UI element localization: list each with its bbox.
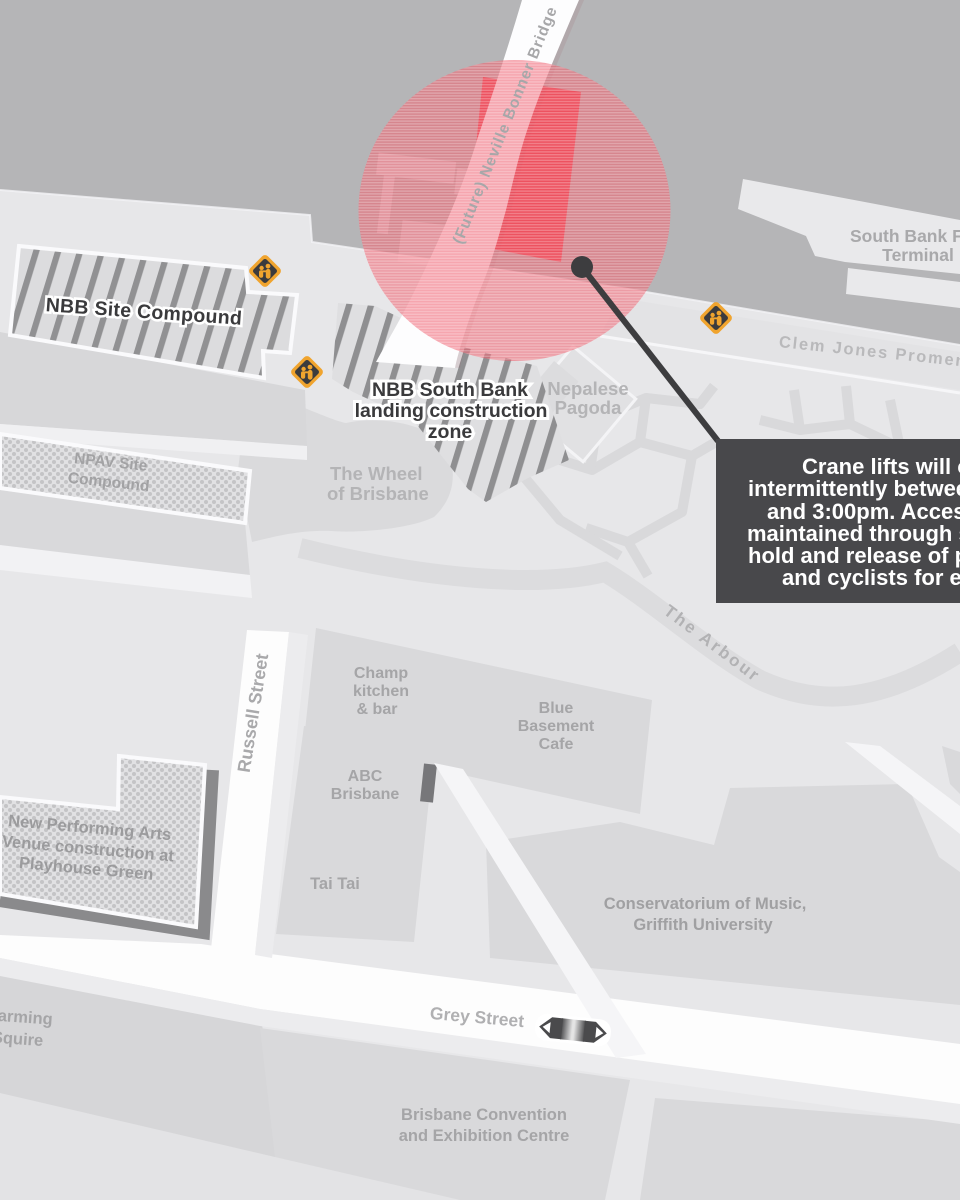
svg-text:Cafe: Cafe <box>539 736 574 753</box>
svg-text:Basement: Basement <box>518 718 595 735</box>
svg-text:Conservatorium of Music,: Conservatorium of Music, <box>604 895 807 913</box>
svg-text:Griffith University: Griffith University <box>633 916 773 934</box>
svg-text:and cyclists for each lift.: and cyclists for each lift. <box>782 565 960 590</box>
svg-text:Brisbane: Brisbane <box>331 786 400 803</box>
svg-text:intermittently between 9:00am: intermittently between 9:00am <box>748 476 960 501</box>
svg-text:landing construction: landing construction <box>355 400 548 422</box>
svg-text:The Wheel: The Wheel <box>330 463 423 484</box>
svg-text:Nepalese: Nepalese <box>547 378 628 399</box>
svg-text:South Bank Ferry: South Bank Ferry <box>850 226 960 246</box>
svg-text:Champ: Champ <box>354 665 408 682</box>
svg-text:of Brisbane: of Brisbane <box>327 483 429 504</box>
svg-text:Blue: Blue <box>539 700 574 717</box>
svg-text:NBB South Bank: NBB South Bank <box>372 379 528 401</box>
svg-text:& bar: & bar <box>357 701 398 718</box>
svg-text:Terminal: Terminal <box>882 245 954 265</box>
svg-text:Squire: Squire <box>0 1029 44 1051</box>
svg-text:zone: zone <box>428 421 473 443</box>
svg-text:Pagoda: Pagoda <box>555 397 623 418</box>
svg-text:Brisbane Convention: Brisbane Convention <box>401 1106 567 1124</box>
svg-text:Tai Tai: Tai Tai <box>310 875 360 893</box>
svg-text:ABC: ABC <box>348 768 383 785</box>
svg-text:kitchen: kitchen <box>353 683 409 700</box>
svg-text:and Exhibition Centre: and Exhibition Centre <box>399 1127 570 1145</box>
